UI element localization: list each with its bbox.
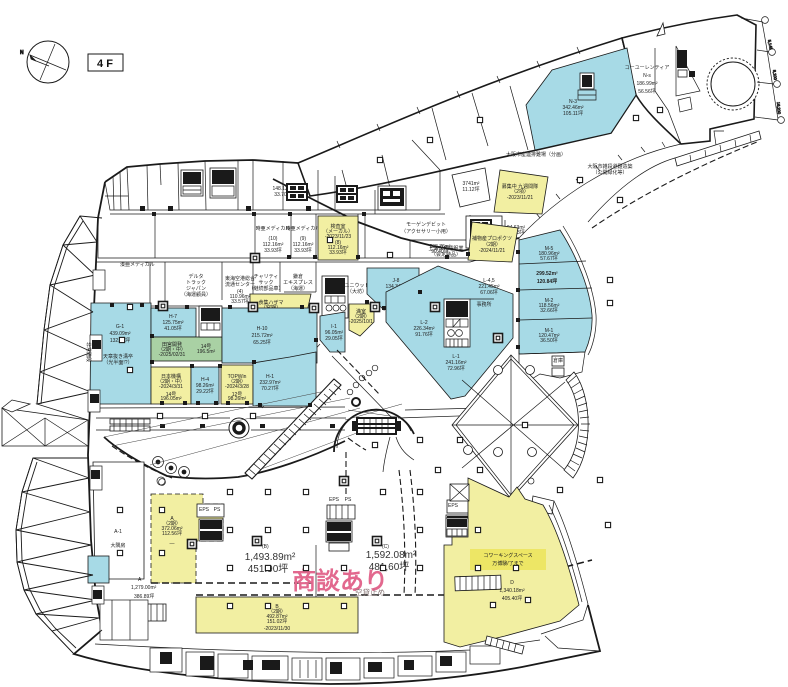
svg-text:29.05坪: 29.05坪 (325, 335, 343, 342)
svg-text:コーユーレンティア: コーユーレンティア (625, 65, 670, 71)
svg-text:186.99m²: 186.99m² (636, 81, 657, 87)
svg-text:EPS: EPS (199, 507, 210, 513)
svg-text:1,592.08m²: 1,592.08m² (366, 550, 417, 561)
svg-text:EPS: EPS (329, 497, 340, 503)
svg-text:ユニウッド: ユニウッド (344, 282, 369, 289)
svg-text:事務所: 事務所 (476, 301, 491, 308)
svg-text:天章抜き溝卒: 天章抜き溝卒 (103, 353, 133, 360)
svg-text:16,200: 16,200 (776, 102, 782, 115)
svg-text:1,279.00m²: 1,279.00m² (131, 585, 157, 591)
svg-text:120.84坪: 120.84坪 (537, 278, 557, 285)
svg-text:105.11坪: 105.11坪 (563, 110, 583, 117)
svg-text:湊亜メディカル: 湊亜メディカル (120, 261, 155, 268)
svg-text:倉庫: 倉庫 (553, 357, 563, 364)
svg-text:N-s: N-s (643, 73, 651, 79)
svg-text:デルタ: デルタ (188, 273, 203, 280)
svg-text:補物産プロポクツ: 補物産プロポクツ (472, 235, 512, 242)
svg-text:EPS: EPS (448, 503, 459, 509)
svg-text:112.56坪: 112.56坪 (162, 530, 182, 537)
svg-text:（大坊）: （大坊） (347, 288, 367, 295)
svg-text:（光半面!?）: （光半面!?） (103, 359, 132, 366)
svg-text:（海運）: （海運） (288, 285, 308, 292)
svg-text:H-10: H-10 (257, 326, 268, 332)
svg-text:439.09m²: 439.09m² (109, 331, 130, 337)
svg-text:（海運顧員）: （海運顧員） (181, 291, 211, 298)
svg-text:（アクセサリー小用）: （アクセサリー小用） (401, 228, 451, 235)
svg-text:91.76坪: 91.76坪 (415, 331, 433, 338)
svg-text:151.02坪: 151.02坪 (267, 618, 287, 625)
svg-text:G-1: G-1 (116, 324, 125, 330)
svg-text:32.66坪: 32.66坪 (540, 307, 558, 314)
svg-text:72.96坪: 72.96坪 (447, 365, 465, 372)
svg-text:大阪市雑段避難造築: 大阪市雑段避難造築 (587, 163, 632, 170)
svg-text:36.50坪: 36.50坪 (540, 337, 558, 344)
svg-text:大阪市産連排難場（分画）: 大阪市産連排難場（分画） (506, 151, 566, 158)
svg-text:(B): (B) (262, 544, 269, 550)
svg-text:386.89坪: 386.89坪 (134, 593, 154, 600)
svg-text:215.72m²: 215.72m² (251, 333, 272, 339)
svg-text:33.93坪: 33.93坪 (264, 247, 282, 254)
svg-text:鎌倉: 鎌倉 (293, 273, 303, 280)
svg-text:上海保税睡眠業: 上海保税睡眠業 (428, 245, 463, 252)
svg-text:65.25坪: 65.25坪 (253, 339, 271, 346)
svg-text:56.56坪: 56.56坪 (638, 88, 656, 95)
svg-text:-2023/11/21: -2023/11/21 (507, 195, 534, 201)
svg-text:N: N (20, 50, 24, 56)
svg-text:405.40坪: 405.40坪 (502, 595, 522, 602)
svg-text:33.93坪: 33.93坪 (329, 249, 347, 256)
svg-text:PS: PS (214, 507, 221, 513)
svg-text:PS: PS (345, 497, 352, 503)
svg-text:東海空港総合: 東海空港総合 (225, 275, 255, 282)
svg-text:A-1: A-1 (114, 529, 122, 535)
svg-text:196.5m²: 196.5m² (197, 349, 216, 355)
svg-text:29.22坪: 29.22坪 (196, 388, 214, 395)
svg-text:—: — (170, 541, 175, 547)
svg-text:33.57坪: 33.57坪 (231, 298, 249, 305)
svg-text:299.52m²: 299.52m² (536, 271, 558, 277)
svg-text:-2023/11/30: -2023/11/30 (264, 626, 291, 632)
svg-text:（継続部品車）: （継続部品車） (248, 285, 283, 292)
svg-text:1,340.18m²: 1,340.18m² (499, 588, 525, 594)
svg-text:4 F: 4 F (97, 58, 113, 70)
svg-text:コワーキングスペース: コワーキングスペース (483, 552, 532, 559)
svg-text:70.27坪: 70.27坪 (261, 385, 279, 392)
svg-text:モーゲンデビット: モーゲンデビット (406, 221, 446, 228)
svg-text:大隅房: 大隅房 (110, 542, 125, 549)
svg-text:（公開緑化等）: （公開緑化等） (592, 169, 627, 176)
svg-text:空貸止め: 空貸止め (355, 587, 385, 597)
svg-text:D: D (510, 580, 514, 586)
svg-text:-2024/3/28: -2024/3/28 (225, 384, 249, 390)
svg-text:-2025/02/31: -2025/02/31 (159, 352, 186, 358)
svg-text:67.06坪: 67.06坪 (480, 289, 498, 296)
svg-text:98.26m²: 98.26m² (228, 396, 247, 402)
svg-text:57.67坪: 57.67坪 (540, 255, 558, 262)
svg-text:-2025/10/1: -2025/10/1 (349, 319, 373, 325)
svg-text:-2024/3/31: -2024/3/31 (159, 384, 183, 390)
svg-text:非常階段: 非常階段 (85, 342, 92, 362)
svg-text:41.05坪: 41.05坪 (164, 325, 182, 332)
svg-text:33.93坪: 33.93坪 (294, 247, 312, 254)
svg-text:時亜メディカル: 時亜メディカル (286, 225, 321, 232)
svg-text:11.12坪: 11.12坪 (462, 186, 479, 193)
svg-text:1,493.89m²: 1,493.89m² (245, 552, 296, 563)
svg-text:-2024/11/21: -2024/11/21 (479, 248, 506, 254)
